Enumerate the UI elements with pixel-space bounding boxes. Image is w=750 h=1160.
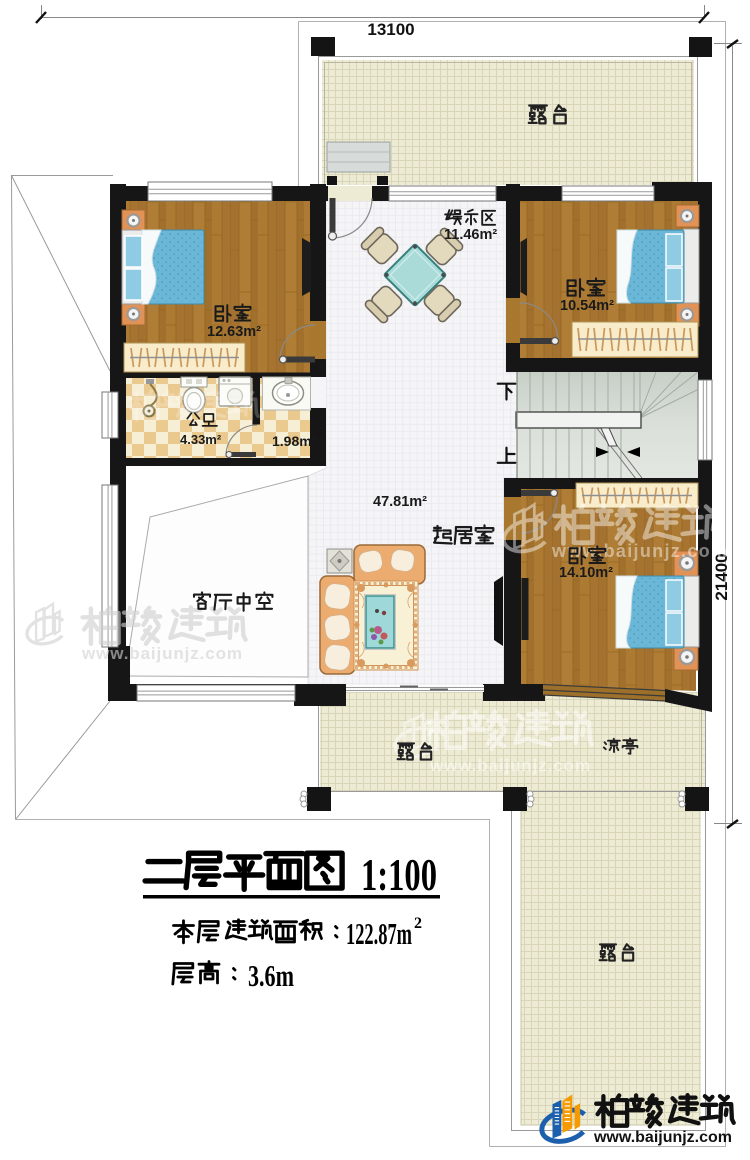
svg-text:10.54m²: 10.54m² bbox=[560, 298, 614, 314]
svg-text:13100: 13100 bbox=[367, 20, 414, 39]
svg-text:2: 2 bbox=[414, 915, 422, 932]
svg-text:www.baijunjz.com: www.baijunjz.com bbox=[429, 756, 590, 775]
svg-text:www.baijunjz.com: www.baijunjz.com bbox=[81, 644, 242, 663]
svg-text:3.6m: 3.6m bbox=[248, 958, 294, 993]
svg-text:4.33m²: 4.33m² bbox=[180, 432, 222, 447]
svg-text:11.46m²: 11.46m² bbox=[444, 227, 497, 243]
svg-text:1:100: 1:100 bbox=[361, 849, 437, 900]
svg-text:12.63m²: 12.63m² bbox=[207, 324, 261, 340]
svg-text:122.87m: 122.87m bbox=[346, 916, 412, 951]
svg-text:14.10m²: 14.10m² bbox=[559, 565, 613, 581]
svg-text:www.baijunjz.com: www.baijunjz.com bbox=[593, 1129, 732, 1146]
svg-text:1.98m²: 1.98m² bbox=[272, 433, 317, 449]
svg-text:47.81m²: 47.81m² bbox=[373, 494, 427, 510]
